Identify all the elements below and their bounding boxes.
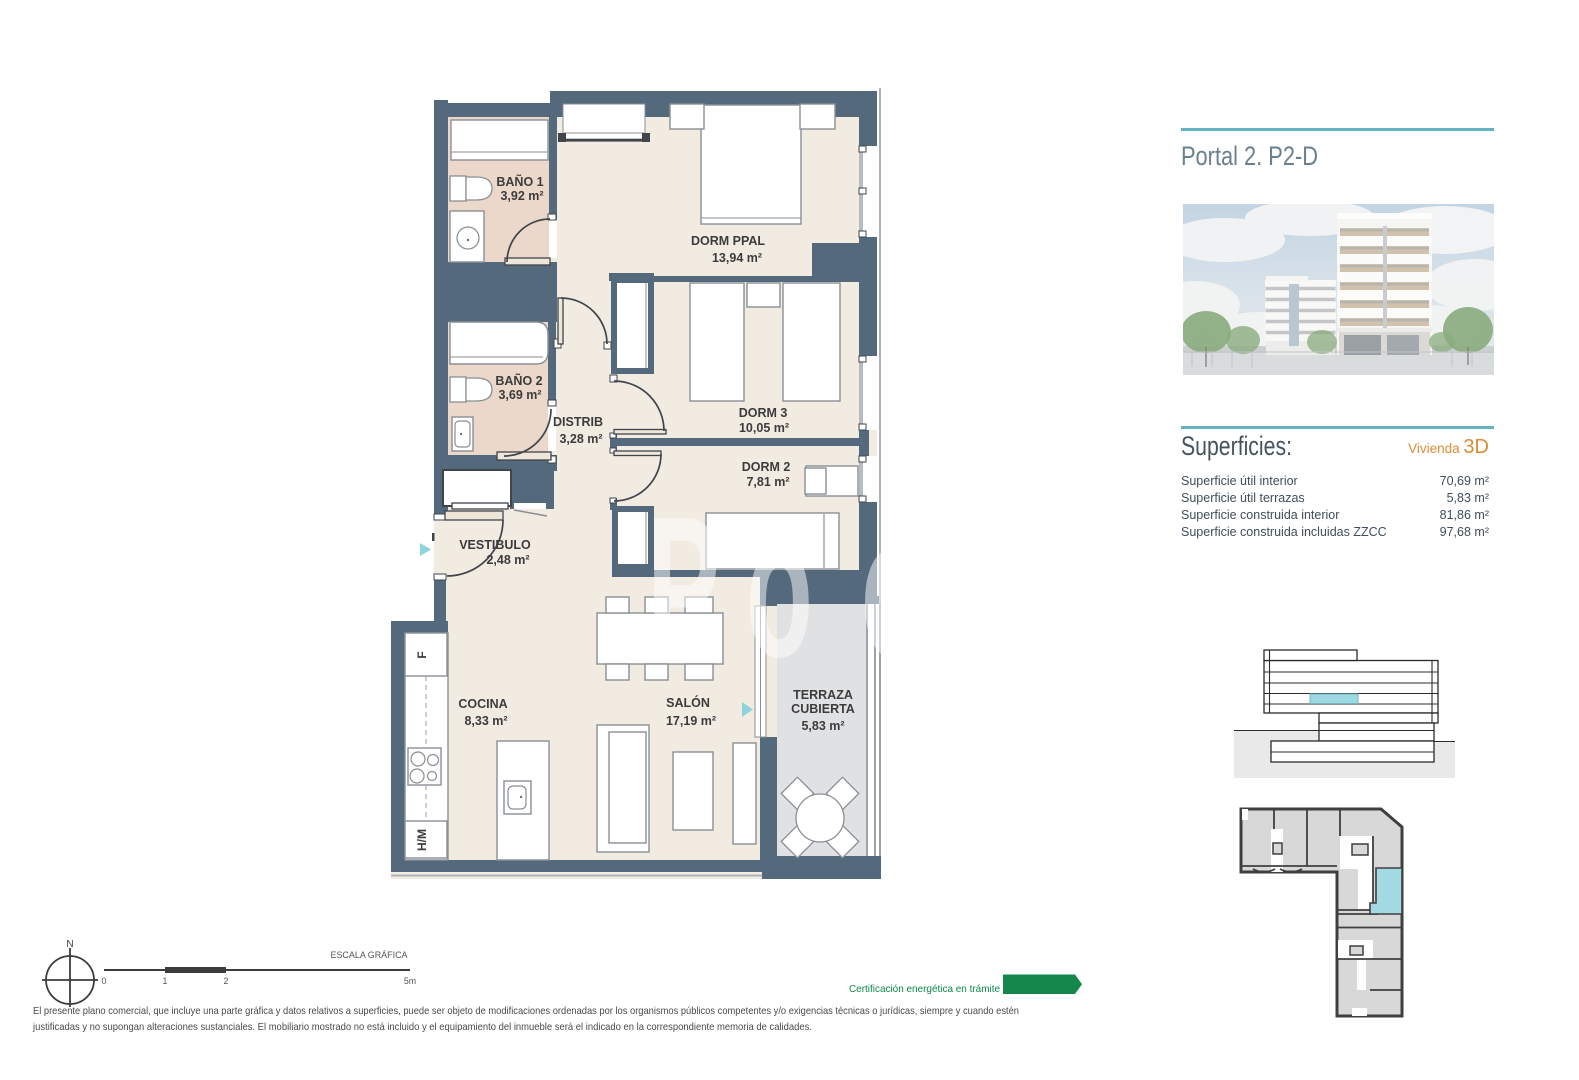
svg-text:DORM PPAL: DORM PPAL [691, 234, 765, 248]
svg-text:Superficie construida incluida: Superficie construida incluidas ZZCC [1181, 525, 1387, 539]
svg-text:COCINA: COCINA [458, 697, 507, 711]
svg-text:DORM 2: DORM 2 [742, 460, 791, 474]
svg-text:2: 2 [224, 976, 229, 986]
svg-text:o: o [746, 476, 813, 699]
svg-text:0: 0 [102, 976, 107, 986]
svg-text:3,92 m²: 3,92 m² [500, 189, 543, 203]
svg-text:DISTRIB: DISTRIB [553, 415, 603, 429]
svg-text:justificadas y no supongan alt: justificadas y no supongan alteraciones … [32, 1022, 812, 1033]
svg-text:Certificación energética en tr: Certificación energética en trámite [849, 983, 1000, 995]
svg-text:5m: 5m [404, 976, 416, 986]
svg-text:81,86 m²: 81,86 m² [1440, 508, 1489, 522]
svg-text:ESCALA GRÁFICA: ESCALA GRÁFICA [331, 950, 409, 960]
svg-text:o: o [861, 476, 928, 699]
svg-text:2,48 m²: 2,48 m² [486, 553, 529, 567]
svg-text:BAÑO 1: BAÑO 1 [496, 174, 543, 189]
svg-text:Superficies:: Superficies: [1181, 431, 1292, 461]
svg-text:10,05 m²: 10,05 m² [739, 421, 789, 435]
svg-text:8,33 m²: 8,33 m² [464, 714, 507, 728]
svg-text:F: F [415, 651, 429, 658]
svg-text:13,94 m²: 13,94 m² [712, 251, 762, 265]
svg-text:Superficie útil terrazas: Superficie útil terrazas [1181, 491, 1305, 505]
svg-text:H/M: H/M [415, 829, 429, 851]
svg-text:BAÑO 2: BAÑO 2 [495, 373, 542, 388]
svg-text:5,83 m²: 5,83 m² [1447, 491, 1489, 505]
svg-text:97,68 m²: 97,68 m² [1440, 525, 1489, 539]
svg-text:5,83 m²: 5,83 m² [801, 719, 844, 733]
svg-text:Superficie construida interior: Superficie construida interior [1181, 508, 1339, 522]
svg-text:CUBIERTA: CUBIERTA [791, 702, 855, 716]
svg-text:Superficie útil interior: Superficie útil interior [1181, 474, 1298, 488]
svg-text:1: 1 [163, 976, 168, 986]
svg-text:3,28 m²: 3,28 m² [559, 432, 602, 446]
svg-text:Portal 2. P2-D: Portal 2. P2-D [1181, 141, 1318, 171]
svg-text:17,19 m²: 17,19 m² [666, 714, 716, 728]
svg-text:El presente plano comercial, q: El presente plano comercial, que incluye… [33, 1006, 1019, 1017]
svg-text:N: N [66, 939, 73, 950]
svg-text:3,69 m²: 3,69 m² [498, 388, 541, 402]
svg-text:DORM 3: DORM 3 [739, 406, 788, 420]
svg-text:VESTIBULO: VESTIBULO [459, 538, 531, 552]
svg-text:P: P [647, 476, 720, 699]
svg-text:70,69 m²: 70,69 m² [1440, 474, 1489, 488]
